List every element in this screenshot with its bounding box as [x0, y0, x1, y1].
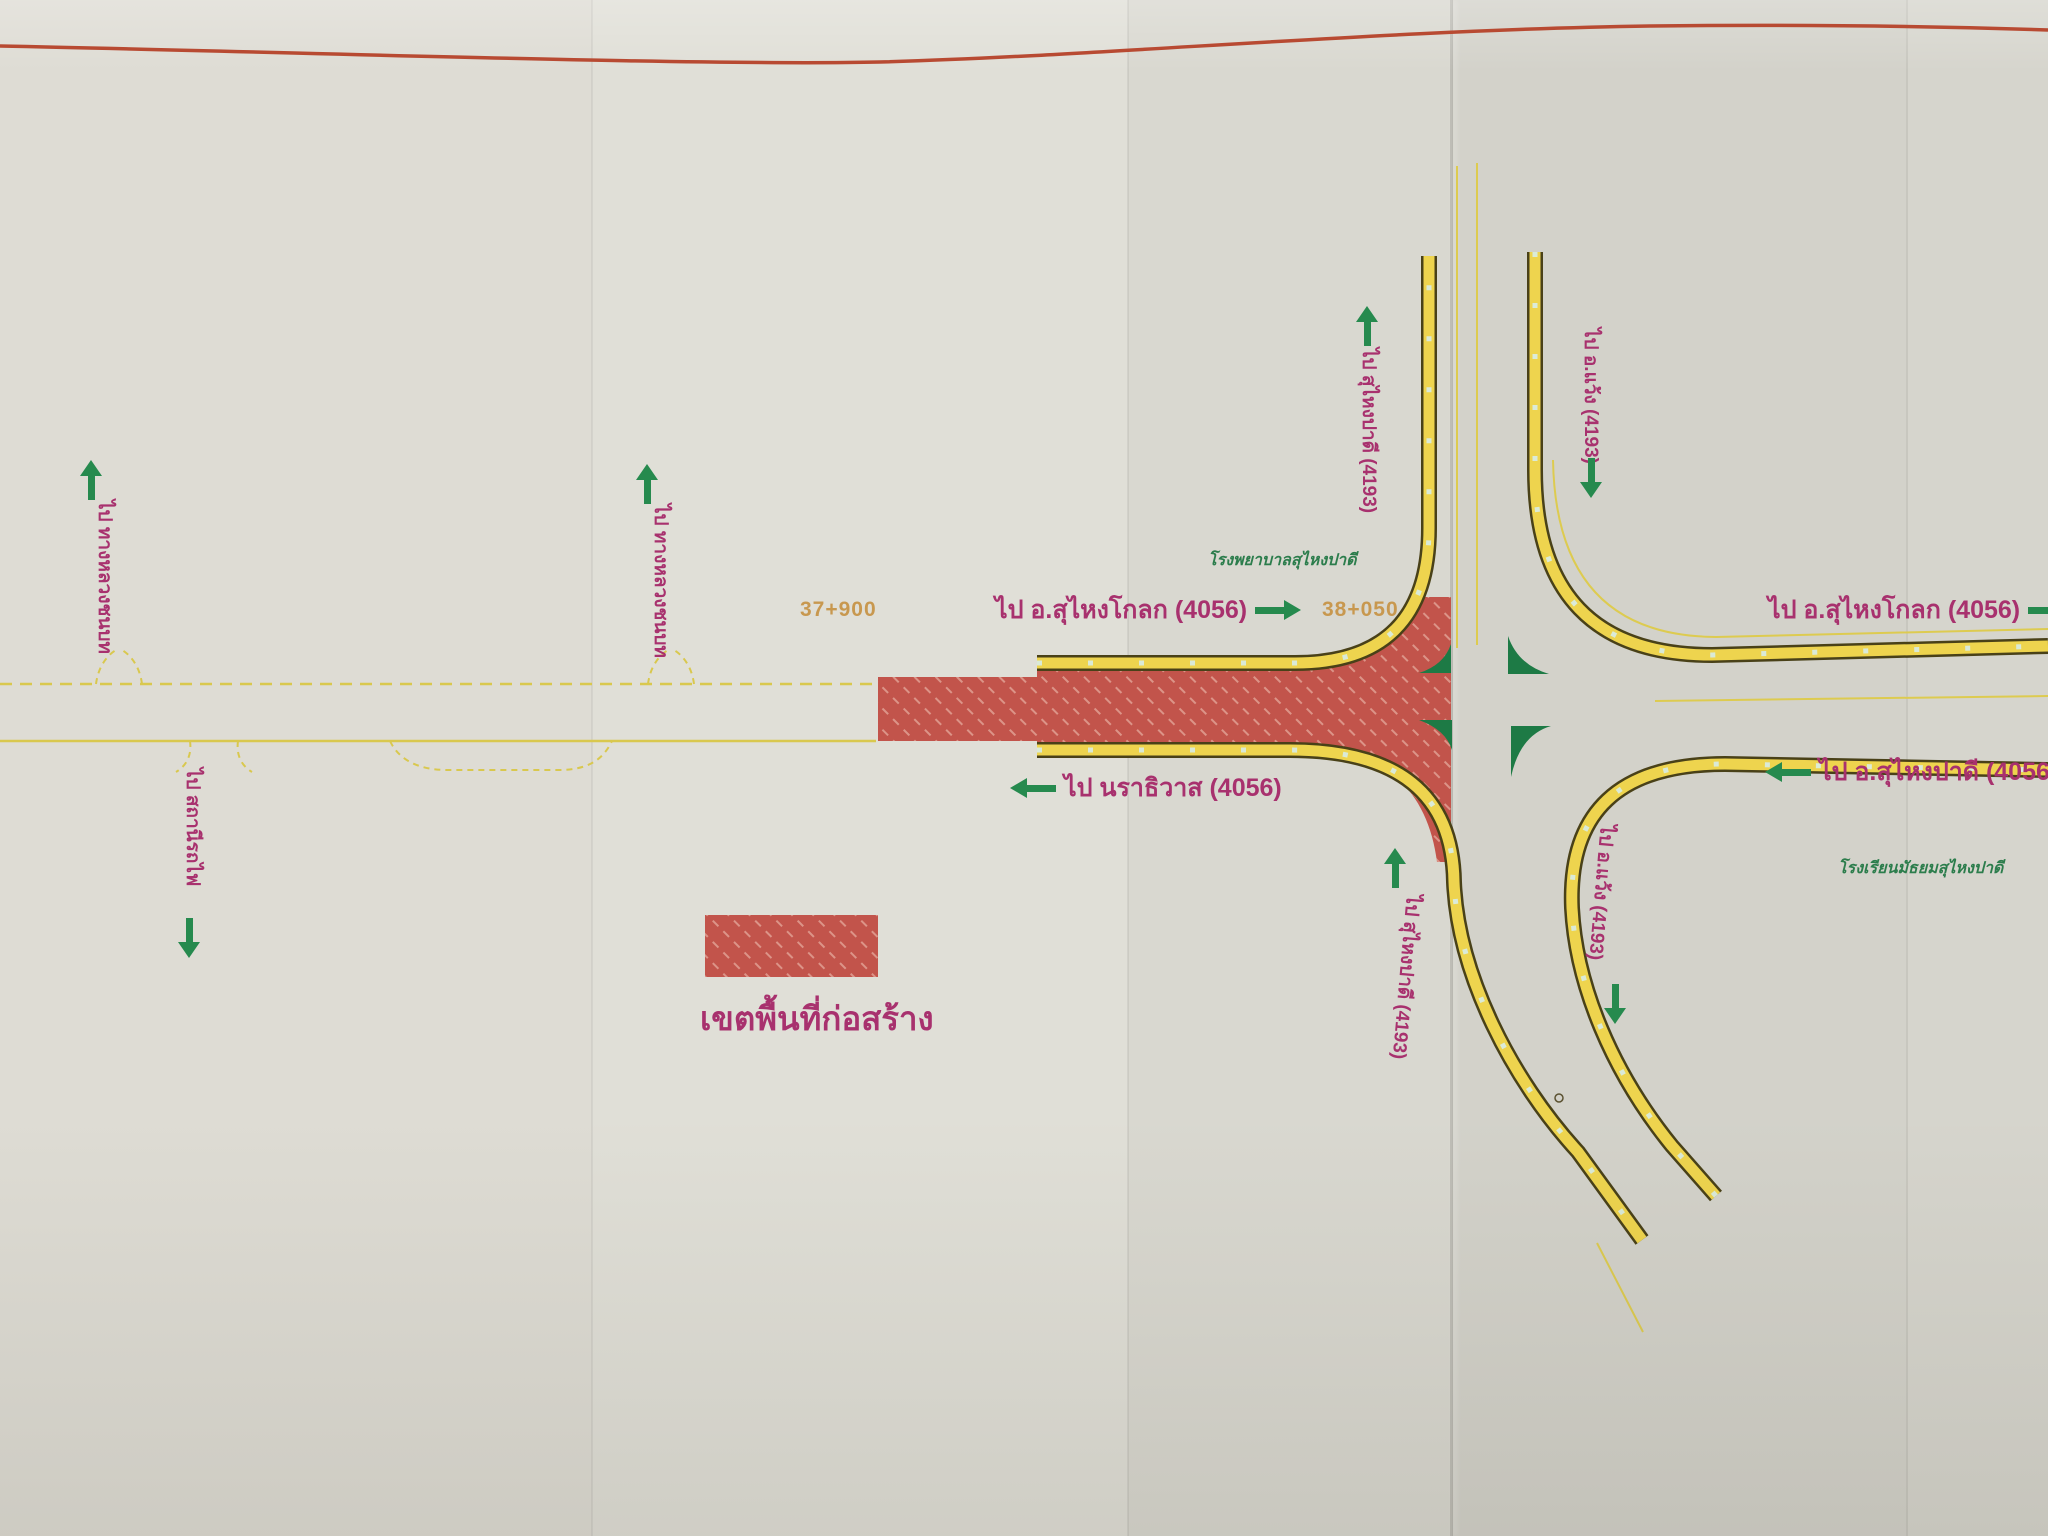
- arrow-left-icon: [1765, 762, 1811, 782]
- side-road-label-far-west: ไป ทางหลวงชนบท: [90, 500, 120, 654]
- legend-swatch: [705, 915, 878, 977]
- direction-label-waeng-upper: ไป อ.แว้ง (4193): [1576, 328, 1606, 464]
- direction-label-kolok-east: ไป อ.สุไหงโกลก (4056): [1768, 590, 2048, 630]
- side-road-label-south: ไป สถานีรถไฟ: [178, 768, 208, 886]
- station-marker-junction: 38+050: [1322, 598, 1399, 622]
- arrow-down-icon: [1604, 984, 1626, 1024]
- direction-text: ไป นราธิวาส (4056): [1064, 768, 1282, 808]
- side-road-label-mid-west: ไป ทางหลวงชนบท: [646, 504, 676, 658]
- direction-text: ไป อ.สุไหงโกลก (4056): [995, 590, 1247, 630]
- arrow-down-icon: [1580, 458, 1602, 498]
- scanned-construction-plan: 37+900 38+050 ไป อ.สุไหงโกลก (4056) ไป อ…: [0, 0, 2048, 1536]
- poi-label-school: โรงเรียนมัธยมสุไหงปาดี: [1838, 856, 2003, 881]
- arrow-right-icon: [2028, 600, 2048, 620]
- paper-margin-line: [0, 25, 2048, 62]
- arrow-up-icon: [1384, 848, 1406, 888]
- arrow-up-icon: [1356, 306, 1378, 346]
- direction-label-kolok-west: ไป อ.สุไหงโกลก (4056): [995, 590, 1301, 630]
- construction-area: [878, 597, 1451, 862]
- arrow-down-icon: [178, 918, 200, 958]
- direction-text: ไป อ.สุไหงโกลก (4056): [1768, 590, 2020, 630]
- arrow-right-icon: [1255, 600, 1301, 620]
- arrow-up-icon: [80, 460, 102, 500]
- direction-text: ไป อ.สุไหงปาดี (4056): [1819, 752, 2048, 792]
- side-road-flares: [96, 650, 694, 772]
- direction-label-padi-north-upper: ไป สุไหงปาดี (4193): [1354, 348, 1384, 513]
- legend-caption: เขตพื้นที่ก่อสร้าง: [700, 992, 934, 1045]
- direction-label-padi-east: ไป อ.สุไหงปาดี (4056): [1765, 752, 2048, 792]
- arrow-up-icon: [636, 464, 658, 504]
- survey-point-marker: [1555, 1094, 1563, 1102]
- station-marker-west: 37+900: [800, 598, 877, 622]
- poi-label-hospital: โรงพยาบาลสุไหงปาดี: [1208, 548, 1357, 573]
- arrow-left-icon: [1010, 778, 1056, 798]
- direction-label-narathiwat: ไป นราธิวาส (4056): [1010, 768, 1282, 808]
